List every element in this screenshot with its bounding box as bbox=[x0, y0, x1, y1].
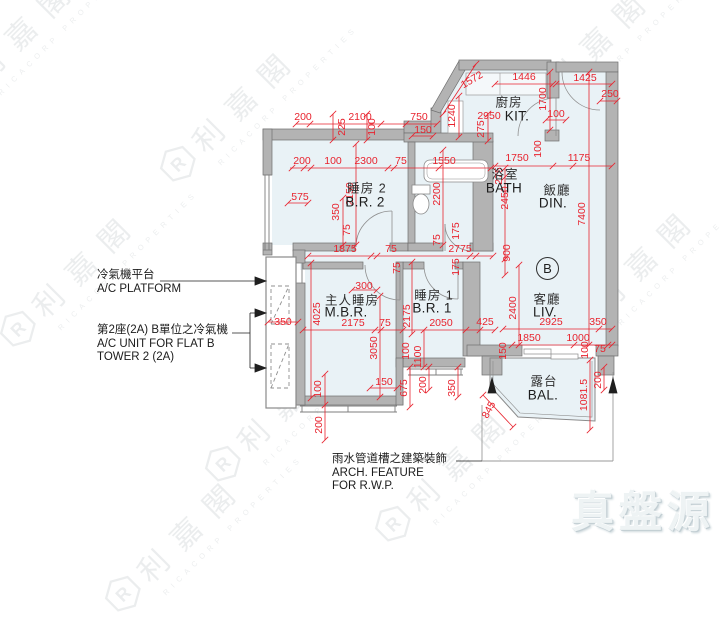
room-label-en: DIN. bbox=[539, 196, 567, 211]
room-label-en: KIT. bbox=[505, 109, 529, 124]
ac-platform-en: A/C PLATFORM bbox=[97, 283, 181, 297]
floor-plan-page: { "watermark": { "logo_letter": "R", "co… bbox=[0, 0, 720, 540]
room-label-en: BAL. bbox=[528, 388, 558, 403]
ac-unit-en1: A/C UNIT FOR FLAT B bbox=[97, 338, 228, 352]
room-label-en: B.R. 2 bbox=[345, 195, 384, 210]
room-label-en: LIV. bbox=[533, 305, 557, 320]
svg-text:R: R bbox=[112, 582, 135, 605]
ac-platform-annotation: 冷氣機平台 A/C PLATFORM bbox=[97, 269, 181, 296]
unit-badge: B bbox=[536, 257, 559, 280]
room-label-en: M.B.R. bbox=[324, 305, 367, 320]
arch-feature-en1: ARCH. FEATURE bbox=[332, 467, 447, 481]
ac-platform-zh: 冷氣機平台 bbox=[97, 269, 181, 283]
arch-feature-zh: 雨水管道槽之建築裝飾 bbox=[332, 453, 447, 467]
arch-feature-en2: FOR R.W.P. bbox=[332, 480, 447, 494]
ricacorp-hex-logo: R bbox=[97, 568, 148, 619]
ac-unit-zh: 第2座(2A) B單位之冷氣機 bbox=[97, 324, 228, 338]
brand-logo: 真盤源 bbox=[571, 478, 715, 540]
arch-feature-annotation: 雨水管道槽之建築裝飾 ARCH. FEATURE FOR R.W.P. bbox=[332, 453, 447, 494]
ac-unit-annotation: 第2座(2A) B單位之冷氣機 A/C UNIT FOR FLAT B TOWE… bbox=[97, 324, 228, 365]
room-label-en: BATH bbox=[486, 181, 522, 196]
room-label-en: B.R. 1 bbox=[412, 301, 451, 316]
ac-unit-en2: TOWER 2 (2A) bbox=[97, 351, 228, 365]
